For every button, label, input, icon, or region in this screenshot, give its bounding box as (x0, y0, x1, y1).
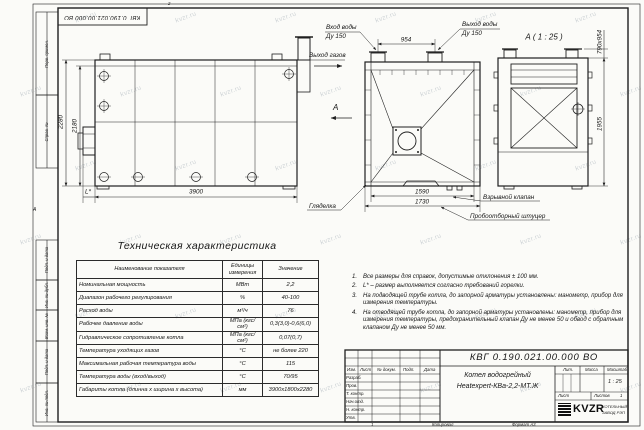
notes-list: 1.Все размеры для справок, допустимые от… (352, 274, 624, 335)
table-row: Габариты котла (длинна х ширина х высота… (77, 384, 319, 397)
strip-cell-sprav-n: Справ. № (36, 95, 58, 168)
spec-col-units: Единицы измерения (223, 261, 263, 279)
row-prov: Пров. (346, 384, 357, 388)
lit-label: Лит. (563, 368, 573, 372)
sight-glass-label: Гляделка (309, 203, 336, 210)
strip-cell-podp-data-1: Подп. и дата (36, 240, 58, 280)
dim-2180: 2180 (71, 119, 78, 133)
drawing-sheet: kvzr.rukvzr.rukvzr.rukvzr.rukvzr.rukvzr.… (0, 0, 644, 430)
strip-cell-inv-dubl: Инв. № дубл. (36, 280, 58, 310)
row-t-kontr: Т. контр. (346, 392, 365, 396)
top-stamp: КВГ 0.190.021.00.000 ВО (58, 8, 147, 25)
side-view-dim-extensions (62, 60, 297, 203)
dim-790x954: 790х954 (596, 30, 603, 54)
zone-marker-top: 2 (168, 2, 170, 6)
dim-1590: 1590 (415, 188, 429, 195)
row-utv: Утв. (346, 416, 356, 420)
col-doc: № докум. (377, 368, 396, 372)
sheets-value: 1 (620, 394, 622, 398)
copied-label: Копировал (432, 423, 453, 427)
col-data: Дата (424, 368, 435, 372)
product-name-line1: Котел водогрейный (440, 372, 555, 379)
inlet-label-line2: Ду 150 (326, 33, 346, 40)
kvzr-logo-text: KVZR (573, 403, 604, 415)
outlet-label-line1: Выход воды (462, 21, 497, 28)
spec-table: Наименование показателя Единицы измерени… (76, 260, 319, 397)
side-view-dim-lines (66, 60, 297, 197)
strip-cell-podp-data-2: Подп. и дата (36, 341, 58, 383)
zone-marker-left: А (33, 208, 36, 213)
detail-view-title: А ( 1 : 25 ) (525, 32, 562, 41)
top-stamp-text: КВГ 0.190.021.00.000 ВО (64, 14, 140, 20)
front-view-linework (365, 52, 480, 190)
inspection-ports (100, 70, 294, 182)
dim-l-star: L* (85, 188, 91, 195)
dim-1730: 1730 (415, 198, 429, 205)
kvzr-logo-sub1: КОТЕЛЬНЫЙ (602, 405, 627, 409)
inlet-label-line1: Вход воды (326, 24, 357, 31)
format-label: Формат А3 (512, 423, 536, 427)
sampling-fitting-label: Пробоотборный штуцер (470, 213, 545, 220)
note-item: 4.На отводящей трубе котла, до запорной … (352, 310, 624, 333)
spec-col-name: Наименование показателя (77, 261, 223, 279)
row-nach-otd: Нач.отд. (346, 400, 364, 404)
product-name-line2: Heatexpert-КВа-2,2-МТ.Ж (440, 383, 555, 390)
dim-954: 954 (401, 36, 412, 43)
doc-number: КВГ 0.190.021.00.000 ВО (440, 350, 628, 366)
view-a-label: А (333, 103, 338, 112)
note-item: 2.L* – размер выполняется согласно требо… (352, 283, 624, 291)
col-podp: Подп. (403, 368, 414, 372)
note-item: 1.Все размеры для справок, допустимые от… (352, 274, 624, 282)
table-row: Температура воды (вход/выход)°С70/95 (77, 371, 319, 384)
scale-label: Масштаб (607, 368, 627, 372)
zone-marker-bottom: 1 (371, 423, 373, 427)
note-item: 3.На подводящей трубе котла, до запорной… (352, 293, 624, 309)
detail-view-linework (494, 49, 592, 189)
row-n-kontr: Н. контр. (346, 408, 365, 412)
dim-3900: 3900 (189, 188, 203, 195)
row-razrab: Разраб. (346, 376, 362, 380)
sheets-label: Листов (594, 394, 610, 398)
table-row: Диапазон рабочего регулирования%40-100 (77, 292, 319, 305)
table-row: Номинальная мощностьМВт2,2 (77, 279, 319, 292)
strip-cell-vzam-inv: Взам. инв. № (36, 310, 58, 341)
kvzr-logo-sub2: ЗАВОД РЭП (602, 411, 625, 415)
col-list: Лист (360, 368, 371, 372)
scale-value: 1 : 25 (608, 380, 622, 386)
table-row: Гидравлическое сопротивление котлаМПа (к… (77, 331, 319, 345)
side-view-linework (78, 37, 313, 189)
spec-col-value: Значение (263, 261, 319, 279)
table-row: Рабочее давление водыМПа (кгс/см²)0,3(3,… (77, 318, 319, 332)
explosion-valve-label: Взрывной клапан (483, 194, 534, 201)
mass-label: Масса (585, 368, 598, 372)
kvzr-logo-icon (558, 403, 571, 416)
outlet-label-line2: Ду 150 (462, 30, 482, 37)
strip-cell-inv-podl: Инв. № подл. (36, 383, 58, 422)
sheet-label: Лист (558, 394, 569, 398)
table-row: Максимальная рабочая температура воды°С1… (77, 358, 319, 371)
dim-1955: 1955 (596, 117, 603, 131)
spec-header-row: Наименование показателя Единицы измерени… (77, 261, 319, 279)
spec-table-title: Техническая характеристика (76, 241, 318, 252)
strip-cell-perv-primen: Перв. примен. (36, 12, 58, 95)
table-row: Температура уходящих газов°Сне более 220 (77, 345, 319, 358)
dim-2280: 2280 (57, 115, 64, 129)
gas-outlet-label: Выход газов (309, 52, 346, 59)
table-row: Расход водым³/ч76 (77, 305, 319, 318)
col-izm: Изм. (347, 368, 356, 372)
